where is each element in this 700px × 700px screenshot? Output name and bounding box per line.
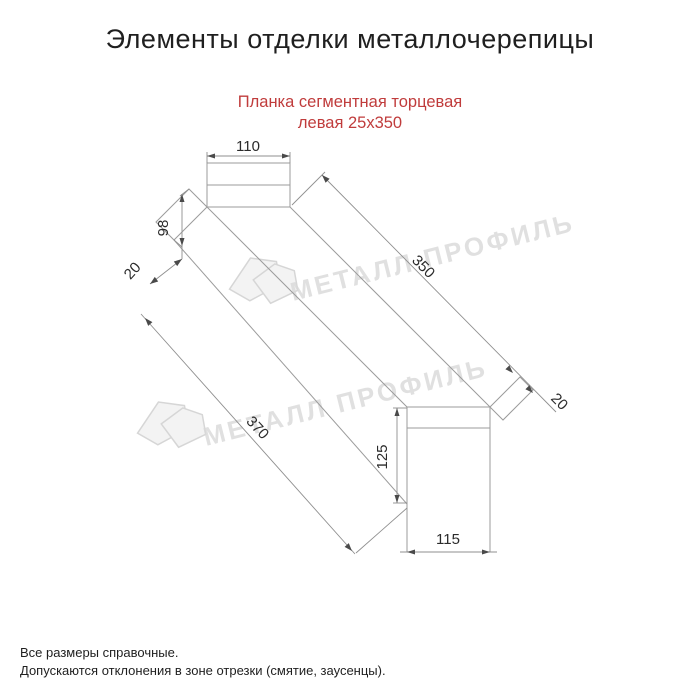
watermark-group: МЕТАЛЛ ПРОФИЛЬ МЕТАЛЛ ПРОФИЛЬ xyxy=(133,207,578,454)
watermark-logo-icon xyxy=(133,395,207,454)
right-hem-flange xyxy=(490,377,533,420)
extension-line xyxy=(292,172,325,205)
dim-label-left-hem: 20 xyxy=(121,259,145,283)
dim-label-end-width: 115 xyxy=(436,531,460,548)
technical-drawing: МЕТАЛЛ ПРОФИЛЬ МЕТАЛЛ ПРОФИЛЬ xyxy=(0,0,700,700)
dim-label-top-width: 110 xyxy=(236,138,260,155)
extension-line xyxy=(356,508,407,553)
strip-near-edge xyxy=(207,207,407,407)
dim-label-left-height: 98 xyxy=(155,220,172,237)
footnote-line2: Допускаются отклонения в зоне отрезки (с… xyxy=(20,662,386,680)
dimension-lines xyxy=(141,152,556,554)
dim-label-end-height: 125 xyxy=(374,444,391,469)
dim-label-right-hem: 20 xyxy=(547,390,571,414)
footnote-line1: Все размеры справочные. xyxy=(20,644,386,662)
extension-line xyxy=(180,189,189,196)
footnotes: Все размеры справочные. Допускаются откл… xyxy=(20,644,386,680)
watermark-text: МЕТАЛЛ ПРОФИЛЬ xyxy=(200,352,490,452)
watermark-text: МЕТАЛЛ ПРОФИЛЬ xyxy=(287,207,577,307)
